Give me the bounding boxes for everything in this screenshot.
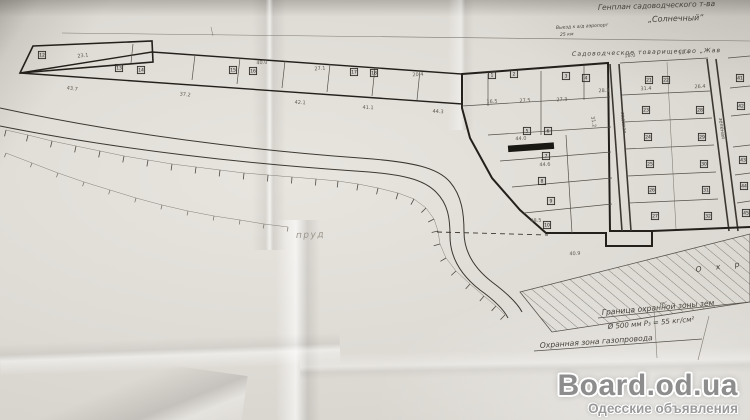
plot-marker: 28: [696, 106, 703, 113]
plot-marker: 7: [542, 152, 549, 159]
watermark: Board.od.ua Одесские объявления: [557, 370, 738, 416]
plot-marker: 29: [698, 133, 705, 140]
dimension-text: 48.5: [530, 218, 541, 225]
plot-marker: 5: [523, 127, 530, 134]
watermark-tagline: Одесские объявления: [557, 402, 738, 416]
dimension-text: 16.5: [486, 99, 497, 105]
dimension-label: 44.3: [432, 109, 443, 115]
plot-marker: 26: [648, 186, 655, 193]
plot-number: 3: [565, 74, 568, 80]
plot-marker: 22: [662, 76, 669, 83]
dimension-label: 37.2: [179, 91, 191, 98]
plot-marker: 43: [739, 156, 746, 163]
strip-body: [20, 52, 462, 104]
leader-line-1: [654, 310, 657, 358]
plot-marker: 44: [740, 182, 747, 189]
plot-marker: 3: [562, 72, 569, 79]
dimension-text: 44.0: [515, 136, 526, 143]
plot-number: 32: [705, 214, 711, 220]
dimension-label: 40.0: [256, 60, 268, 67]
plot-marker: 9: [547, 197, 554, 204]
plot-number: 17: [351, 70, 357, 76]
plot-marker: 42: [737, 102, 744, 109]
plot-marker: 18: [370, 69, 377, 76]
plot-marker: 10: [543, 221, 550, 228]
plot-number: 28: [697, 108, 703, 114]
dimension-label: 48.5: [530, 218, 541, 225]
dimension-text: 18.0: [624, 53, 636, 60]
plot-number: 8: [541, 179, 544, 185]
plot-marker: 41: [736, 74, 743, 81]
dimension-text: 18.4: [678, 50, 690, 57]
plot-marker: 6: [544, 127, 551, 134]
plot-marker: 24: [644, 133, 651, 140]
plot-number: 1: [491, 73, 494, 79]
dimension-text: 43.7: [66, 85, 78, 92]
dimension-label: 44.0: [515, 136, 526, 143]
dimension-text: 27.1: [314, 66, 326, 73]
plot-marker: 23: [642, 106, 649, 113]
dimension-text: 20.4: [412, 72, 423, 79]
plan-title-line2: „Солнечный”: [648, 13, 705, 24]
dimension-label: 44.6: [539, 162, 550, 169]
road-lower-edge: [0, 126, 508, 318]
plot-number: 9: [550, 199, 553, 205]
dimension-text: 31.2: [589, 116, 597, 128]
dimension-label: 27.1: [314, 66, 326, 73]
leader-line-2: [698, 316, 709, 360]
plot-marker: 32: [704, 212, 711, 219]
plot-number: 26: [649, 188, 655, 194]
plot-marker: 13: [115, 64, 122, 71]
plot-number: 5: [526, 129, 529, 135]
dimension-label: 16.5: [486, 99, 497, 105]
dimension-text: 31.4: [640, 86, 651, 92]
plot-number: 16: [250, 69, 256, 75]
watermark-site: Board.od.ua: [557, 370, 738, 402]
plot-number: 15: [230, 68, 236, 74]
plot-marker: 45: [742, 209, 749, 216]
pipeline-axis-dashed: [437, 232, 548, 235]
dimension-label: 31.2: [589, 116, 597, 128]
winding-road: [0, 108, 522, 318]
plot-number: 4: [585, 76, 588, 82]
plot-number: 7: [545, 154, 548, 160]
plot-marker: 15: [229, 66, 236, 73]
dimension-label: 41.1: [362, 105, 373, 112]
plot-marker: 1: [488, 71, 495, 78]
plot-marker: 14: [137, 66, 144, 73]
site-plan-drawing: садовая зелёная: [0, 0, 750, 420]
plot-number: 45: [743, 211, 749, 217]
dimension-label: 18.4: [678, 50, 690, 57]
plot-number: 31: [703, 188, 709, 194]
ravine-slope-ticks: [6, 153, 288, 227]
plot-number: 12: [39, 53, 45, 59]
plot-number: 21: [646, 78, 652, 84]
dimension-label: 40.9: [569, 251, 580, 258]
plot-strip: [20, 41, 462, 104]
plot-number: 27: [652, 214, 658, 220]
grid-block-a-outline: [462, 63, 652, 246]
plot-marker: 25: [646, 160, 653, 167]
photo-of-paper-plan: садовая зелёная: [0, 0, 750, 420]
dimension-text: 28.3: [598, 88, 609, 94]
dimension-label: 23.1: [77, 52, 89, 59]
dimension-label: 42.1: [294, 100, 306, 107]
plot-marker: 27: [651, 212, 658, 219]
plot-number: 42: [738, 104, 744, 110]
plot-number: 14: [138, 68, 144, 74]
road-upper-edge: [0, 108, 522, 312]
dimension-label: 20.4: [412, 72, 423, 79]
plan-title-line1: Генплан садоводческого т-ва: [598, 0, 716, 12]
top-road-line: [62, 33, 750, 41]
dimension-label: 27.5: [519, 98, 530, 104]
plot-number: 2: [513, 72, 516, 78]
exit-note-line1: Выезд к а/д аэропорт: [556, 22, 609, 31]
dimension-text: 26.4: [694, 84, 705, 90]
dimension-text: 40.9: [569, 251, 580, 258]
plot-number: 25: [647, 162, 653, 168]
dimension-label: 43.7: [66, 85, 78, 92]
dimension-text: 42.1: [294, 100, 306, 107]
plot-number: 43: [740, 158, 746, 164]
plot-number: 18: [371, 71, 377, 77]
neighbor-association-label: Садоводческое товарищество „Жав: [572, 47, 721, 58]
plot-marker: 8: [538, 177, 545, 184]
dimension-label: 28.3: [598, 88, 609, 94]
plot-marker: 31: [702, 186, 709, 193]
plot-marker: 4: [582, 74, 589, 81]
dark-building-bar: [508, 142, 554, 152]
plot-number: 22: [663, 78, 669, 84]
dimension-text: 27.3: [556, 97, 567, 103]
plot-marker: 17: [350, 68, 357, 75]
dimension-label: 26.4: [694, 84, 705, 90]
dimension-label: 18.0: [624, 53, 636, 60]
plot-marker: 21: [645, 76, 652, 83]
plot-number: 29: [699, 135, 705, 141]
dimension-text: 40.0: [256, 60, 268, 67]
dimension-label: 31.4: [640, 86, 651, 92]
plot-number: 44: [741, 184, 747, 190]
plot-marker: 2: [510, 70, 517, 77]
grid-bottom-boundary: [652, 227, 750, 231]
dimension-text: 23.1: [77, 52, 89, 59]
plot-number: 30: [701, 162, 707, 168]
plot-number: 10: [544, 223, 550, 229]
top-road: [62, 27, 750, 41]
dimension-text: 41.1: [362, 105, 373, 112]
plot-number: 23: [643, 108, 649, 114]
plot-number: 6: [547, 129, 550, 135]
plot-number: 24: [645, 135, 651, 141]
street-1: садовая: [610, 64, 631, 231]
exit-note-line2: 25 км: [560, 31, 574, 38]
dimension-text: 44.3: [432, 109, 443, 115]
plot-number: 13: [116, 66, 122, 72]
dimension-text: 37.2: [179, 91, 191, 98]
dimension-label: 27.3: [556, 97, 567, 103]
plot-number: 41: [737, 76, 743, 82]
dimension-text: 44.6: [539, 162, 550, 169]
street-1-name: садовая: [619, 112, 627, 134]
pipeline-zone-label: Охранная зона газопровода: [540, 333, 654, 350]
plot-marker: 30: [700, 160, 707, 167]
hatched-zone-band: [520, 234, 750, 332]
plot-marker: 16: [249, 67, 256, 74]
pond-label: пруд: [296, 230, 325, 241]
plot-marker: 12: [38, 51, 45, 58]
dimension-text: 27.5: [519, 98, 530, 104]
